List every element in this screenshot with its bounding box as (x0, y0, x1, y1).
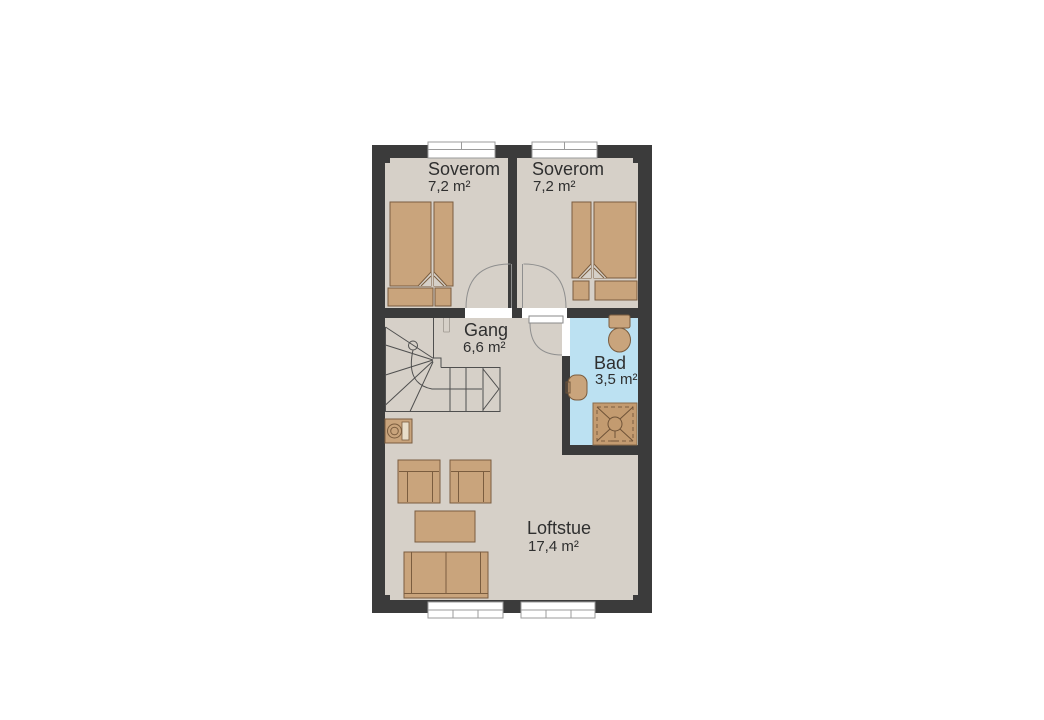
room-label-loft-living-room-name: Loftstue (527, 519, 591, 539)
room-label-bedroom-2-area: 7,2 m² (533, 179, 576, 196)
room-label-bedroom-1-name: Soverom (428, 160, 500, 180)
window-icon (521, 602, 595, 618)
room-label-bedroom-1-area: 7,2 m² (428, 179, 471, 196)
wall-bathroom-south (562, 445, 638, 455)
window-icon (428, 142, 495, 158)
room-label-hallway-name: Gang (464, 321, 508, 341)
washing-machine-icon (385, 419, 412, 443)
window-icon (532, 142, 597, 158)
wall-between-bedrooms (508, 158, 517, 318)
armchair-icon (450, 460, 491, 503)
corner-block (385, 595, 390, 600)
room-label-hallway-area: 6,6 m² (463, 340, 506, 357)
bed-icon (388, 202, 453, 306)
shower-icon (593, 403, 637, 445)
floor-plan-drawing (0, 0, 1044, 720)
coffee-table-icon (415, 511, 475, 542)
sofa-icon (404, 552, 488, 598)
armchair-icon (398, 460, 440, 503)
room-label-bathroom-area: 3,5 m² (595, 372, 638, 389)
bed-icon (572, 202, 637, 300)
corner-block (633, 158, 638, 163)
room-label-loft-living-room-area: 17,4 m² (528, 539, 579, 556)
corner-block (633, 595, 638, 600)
sink-icon (566, 375, 587, 400)
room-label-bedroom-2-name: Soverom (532, 160, 604, 180)
window-icon (428, 602, 503, 618)
toilet-icon (609, 315, 631, 352)
floor-plan-page: Soverom 7,2 m² Soverom 7,2 m² Gang 6,6 m… (0, 0, 1044, 720)
corner-block (385, 158, 390, 163)
